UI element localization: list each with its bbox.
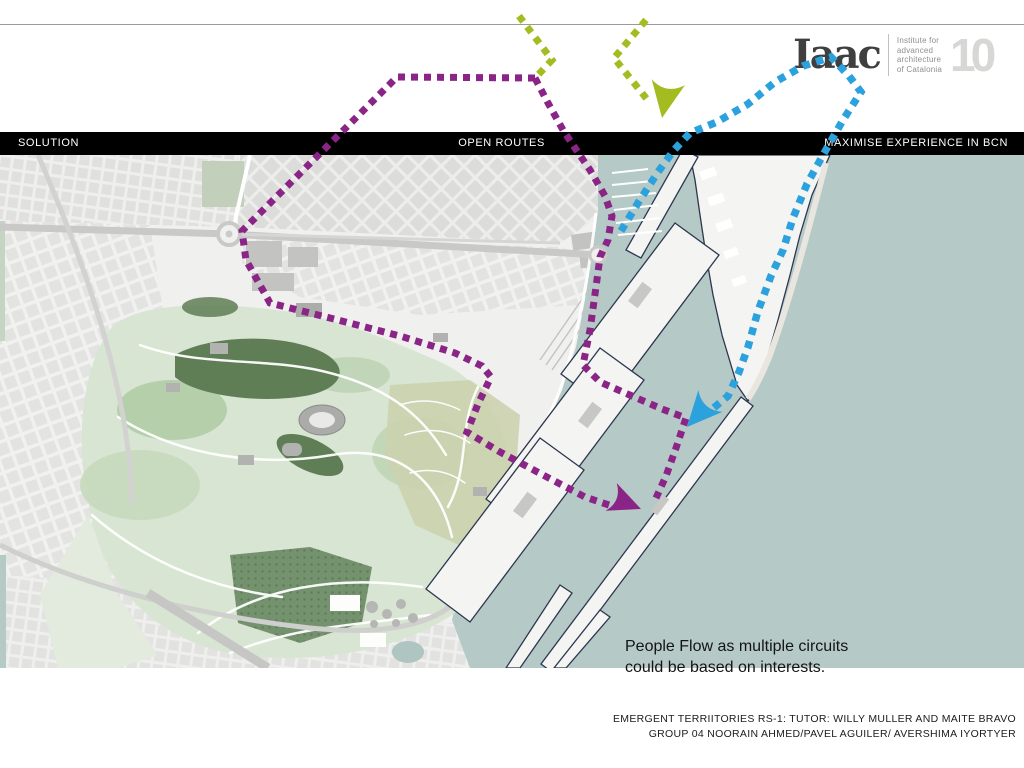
bar-label-maximise: MAXIMISE EXPERIENCE IN BCN <box>824 137 1008 149</box>
annotation-line: People Flow as multiple circuits <box>625 636 855 657</box>
iaac-logo: Iaac Institute for advanced architecture… <box>793 34 991 76</box>
logo-institute-line: architecture <box>897 55 942 65</box>
green-route-left <box>519 16 552 76</box>
map-svg <box>0 155 1024 668</box>
barcelona-map <box>0 155 1024 668</box>
footer-line-tutor: EMERGENT TERRIITORIES RS-1: TUTOR: WILLY… <box>613 712 1016 727</box>
slide: Iaac Institute for advanced architecture… <box>0 0 1024 768</box>
logo-institute-line: of Catalonia <box>897 65 942 75</box>
canal <box>0 555 6 668</box>
footer-line-group: GROUP 04 NOORAIN AHMED/PAVEL AGUILER/ AV… <box>613 727 1016 742</box>
port-roundabout <box>590 247 606 263</box>
iaac-wordmark: Iaac <box>793 35 880 75</box>
bar-label-solution: SOLUTION <box>18 137 79 149</box>
logo-institute-text: Institute for advanced architecture of C… <box>897 36 942 74</box>
pond <box>392 641 424 663</box>
map-annotation: People Flow as multiple circuits could b… <box>625 636 855 678</box>
green-route-right <box>614 20 650 103</box>
annotation-line: could be based on interests. <box>625 657 855 678</box>
anniversary-10-logo: 10 <box>950 35 991 75</box>
green-route-right-arrow <box>645 79 685 121</box>
placa-espanya-roundabout <box>218 223 240 245</box>
logo-institute-line: advanced <box>897 46 942 56</box>
footer-credits: EMERGENT TERRIITORIES RS-1: TUTOR: WILLY… <box>613 712 1016 742</box>
top-rule <box>0 24 1024 25</box>
header-bar: SOLUTION OPEN ROUTES MAXIMISE EXPERIENCE… <box>0 132 1024 155</box>
logo-institute-line: Institute for <box>897 36 942 46</box>
logo-divider <box>888 34 889 76</box>
bar-label-open-routes: OPEN ROUTES <box>458 137 545 149</box>
